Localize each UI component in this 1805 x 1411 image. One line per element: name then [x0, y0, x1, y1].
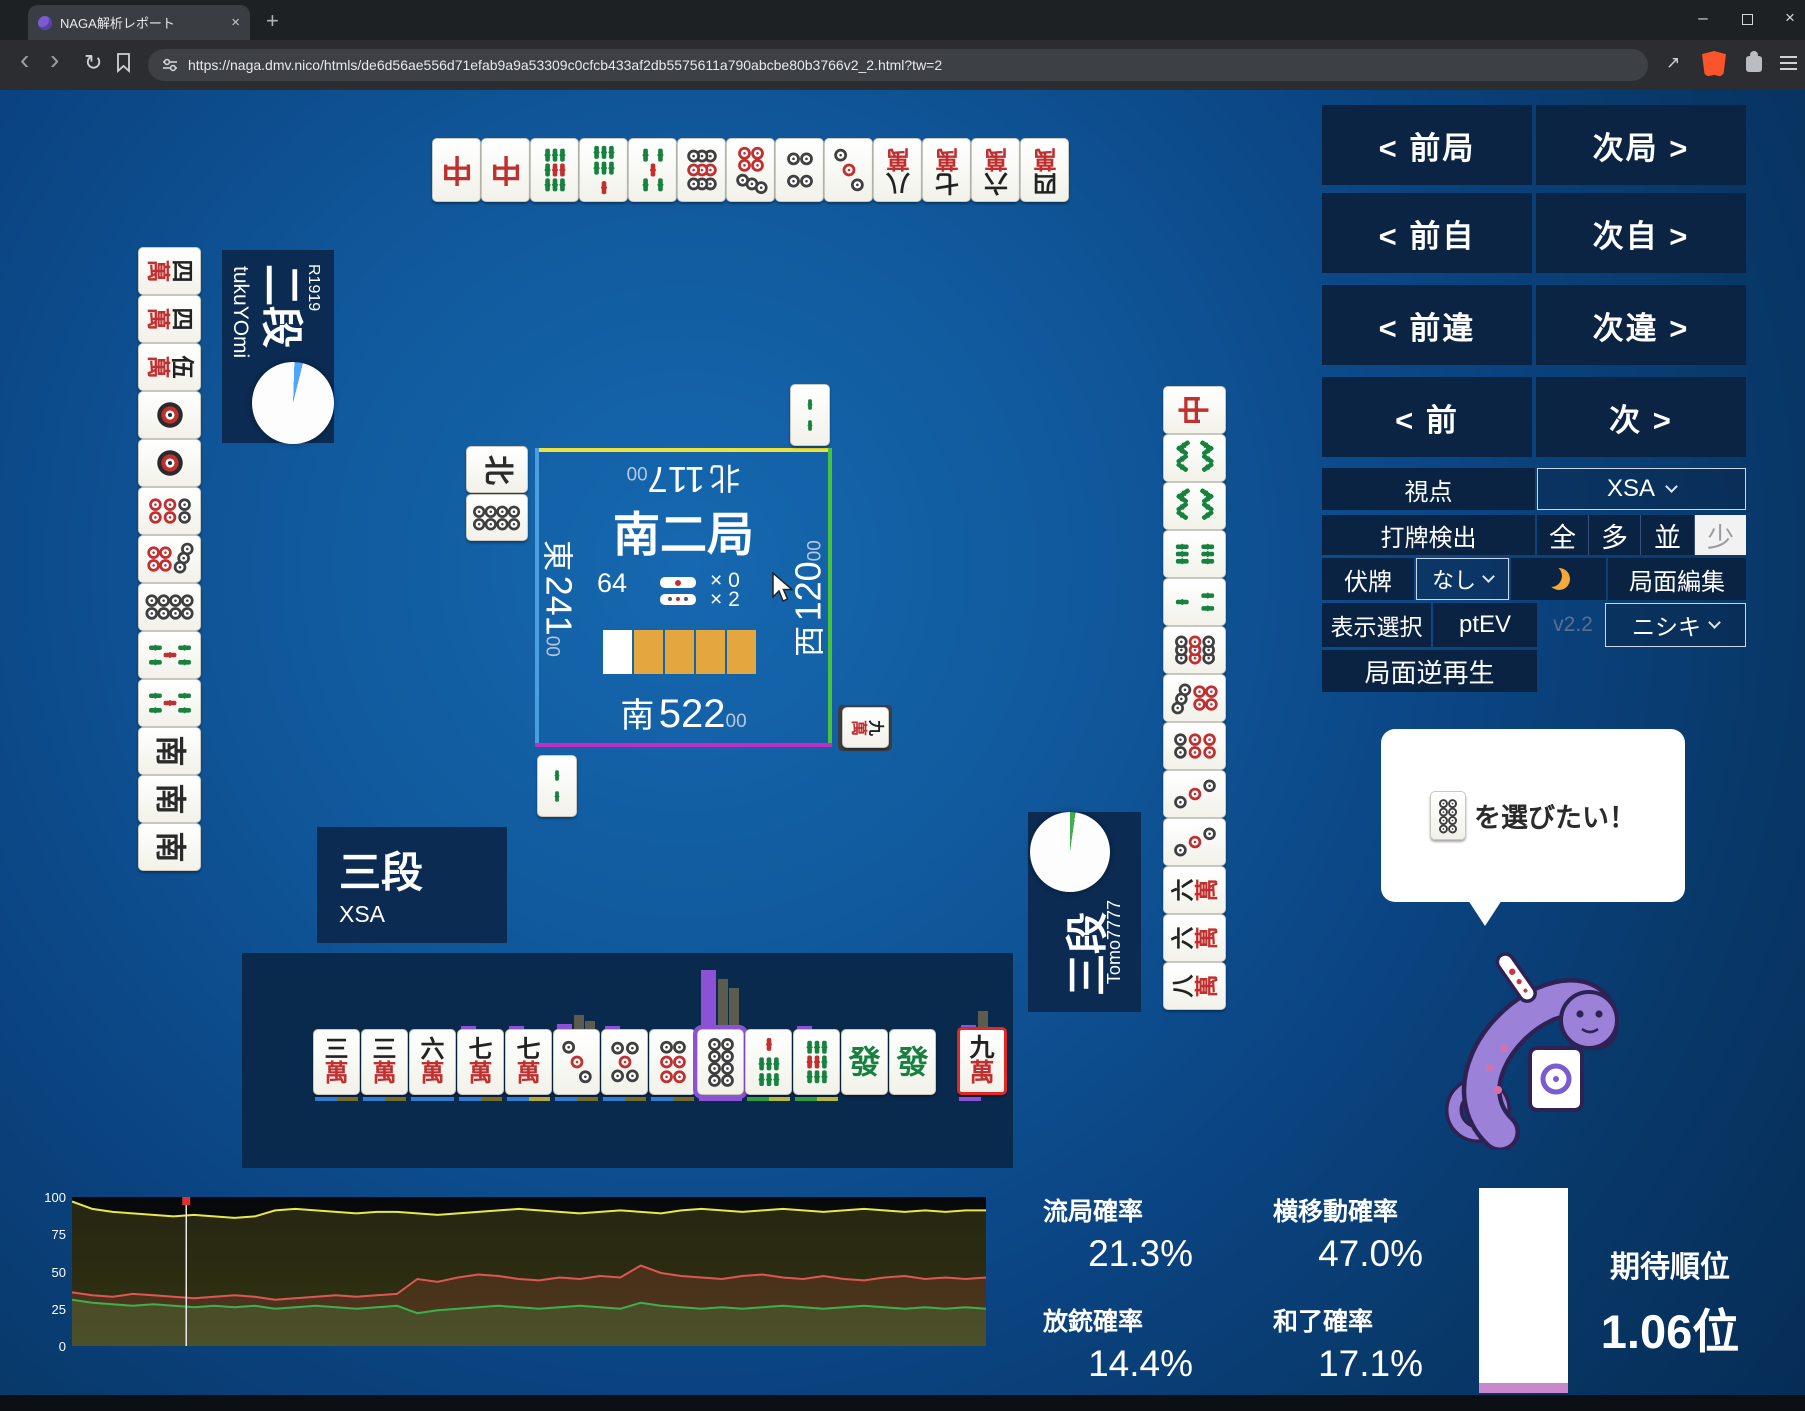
y-axis-tick: 0 — [38, 1339, 66, 1354]
brave-shield-icon[interactable] — [1702, 51, 1726, 77]
mahjong-tile-6p — [1163, 722, 1226, 770]
window-close-button[interactable]: × — [1775, 8, 1805, 28]
night-mode-button[interactable] — [1511, 558, 1606, 600]
houra-label: 和了確率 — [1273, 1302, 1373, 1338]
mahjong-tile-6m: 六萬 — [1163, 914, 1226, 962]
y-axis-tick: 100 — [38, 1190, 66, 1205]
mahjong-tile-8s — [1163, 482, 1226, 530]
mahjong-tile-5s — [628, 138, 677, 202]
mahjong-tile-chun: 中 — [432, 138, 481, 202]
chevron-down-icon — [1665, 480, 1678, 493]
y-axis-tick: 50 — [38, 1265, 66, 1280]
window-minimize-button[interactable]: – — [1688, 8, 1718, 28]
mahjong-tile-6p[interactable] — [649, 1029, 696, 1095]
mahjong-tile-8s — [1163, 434, 1226, 482]
score-jicha: 南 52200 — [535, 688, 832, 737]
tile-underline — [363, 1097, 406, 1101]
mahjong-tile-7m[interactable]: 七萬 — [505, 1029, 552, 1095]
url-bar[interactable]: https://naga.dmv.nico/htmls/de6d56ae556d… — [148, 49, 1648, 81]
naga-report-page: 中中八萬七萬六萬四萬 四萬四萬伍萬南南南 中六萬六萬八萬 二段 tukuYOmi… — [0, 90, 1805, 1411]
back-button-icon[interactable]: ‹ — [20, 44, 29, 76]
round-marker-squares — [603, 630, 756, 674]
share-icon[interactable]: ↗ — [1666, 53, 1680, 73]
dahai-option-all[interactable]: 全 — [1537, 515, 1588, 555]
gray-choice-bar — [729, 988, 739, 1029]
dahai-detect-label: 打牌検出 — [1322, 515, 1535, 555]
rank-pie-chart-shimocha — [1030, 812, 1110, 892]
prev-self-button[interactable]: < 前自 — [1322, 193, 1532, 273]
mahjong-tile-8m: 八萬 — [873, 138, 922, 202]
win-rate-chart — [72, 1197, 986, 1346]
board-edit-button[interactable]: 局面編集 — [1608, 558, 1746, 600]
mahjong-tile-8m: 八萬 — [1163, 962, 1226, 1010]
tile-underline — [459, 1097, 502, 1101]
tab-bar: NAGA解析レポート × + – × — [0, 0, 1805, 40]
forward-button-icon[interactable]: › — [50, 44, 59, 76]
mahjong-tile-7p — [726, 138, 775, 202]
tile-underline — [795, 1097, 838, 1101]
next-move-button[interactable]: 次 > — [1536, 377, 1746, 457]
browser-toolbar: ‹ › ↻ https://naga.dmv.nico/htmls/de6d56… — [0, 40, 1805, 90]
extensions-icon[interactable] — [1746, 56, 1762, 72]
mahjong-tile-6s — [1163, 530, 1226, 578]
fusehai-label: 伏牌 — [1322, 558, 1414, 600]
player-name: Tomo7777 — [1104, 900, 1125, 984]
dahai-option-normal[interactable]: 並 — [1640, 515, 1694, 555]
mahjong-tile-7s — [579, 138, 628, 202]
mahjong-tile-5s — [138, 631, 201, 679]
chevron-down-icon — [1708, 616, 1721, 629]
window-maximize-button[interactable] — [1742, 14, 1753, 25]
mahjong-tile-6m: 六萬 — [1163, 866, 1226, 914]
player-name: tukuYOmi — [228, 266, 252, 358]
player-rank: 三段 — [339, 839, 423, 900]
display-select-button[interactable]: 表示選択 — [1322, 603, 1431, 647]
menu-icon[interactable] — [1780, 56, 1797, 74]
houjuu-value: 14.4% — [1043, 1343, 1193, 1385]
prev-mismatch-button[interactable]: < 前違 — [1322, 285, 1532, 365]
mahjong-tile-3p — [1163, 818, 1226, 866]
mahjong-tile-3m[interactable]: 三萬 — [361, 1029, 408, 1095]
mahjong-tile-9p — [1163, 626, 1226, 674]
mahjong-tile-4m: 四萬 — [138, 295, 201, 343]
reverse-play-button[interactable]: 局面逆再生 — [1322, 650, 1537, 692]
mahjong-tile-7p — [1163, 674, 1226, 722]
yokoidou-label: 横移動確率 — [1273, 1192, 1398, 1228]
bookmark-icon[interactable] — [116, 53, 131, 73]
tab-close-icon[interactable]: × — [231, 14, 240, 31]
mahjong-tile-8p — [1430, 791, 1466, 840]
riichi-stick-icon — [660, 577, 696, 588]
mahjong-tile-3p[interactable] — [553, 1029, 600, 1095]
mahjong-tile-4p — [775, 138, 824, 202]
prev-round-button[interactable]: < 前局 — [1322, 105, 1532, 185]
mahjong-tile-nan: 南 — [138, 775, 201, 823]
version-label: v2.2 — [1545, 613, 1601, 637]
model-select[interactable]: ニシキ — [1605, 603, 1746, 647]
tile-underline — [411, 1097, 454, 1101]
browser-window: NAGA解析レポート × + – × ‹ › ↻ https://naga.dm… — [0, 0, 1805, 1411]
tab-title: NAGA解析レポート — [60, 13, 223, 32]
player-name: XSA — [339, 901, 385, 928]
mahjong-tile-hatsu[interactable]: 發 — [841, 1029, 888, 1095]
houra-value: 17.1% — [1273, 1343, 1423, 1385]
ryuukyoku-label: 流局確率 — [1043, 1192, 1143, 1228]
marker-square — [665, 630, 694, 674]
y-axis-tick: 25 — [38, 1302, 66, 1317]
browser-tab[interactable]: NAGA解析レポート × — [28, 5, 250, 40]
dahai-option-many[interactable]: 多 — [1588, 515, 1640, 555]
tile-underline — [555, 1097, 598, 1101]
expected-rank-bar — [1479, 1188, 1568, 1393]
tile-underline — [699, 1097, 742, 1101]
mahjong-tile-9s — [530, 138, 579, 202]
bubble-tail — [1468, 900, 1502, 926]
expected-rank-value: 1.06位 — [1585, 1293, 1755, 1362]
player-panel-jicha: 三段 XSA — [317, 827, 507, 943]
mahjong-tile-9p — [677, 138, 726, 202]
mahjong-tile-8p — [138, 583, 201, 631]
next-round-button[interactable]: 次局 > — [1536, 105, 1746, 185]
mahjong-tile-1p — [138, 391, 201, 439]
tile-underline — [651, 1097, 694, 1101]
next-mismatch-button[interactable]: 次違 > — [1536, 285, 1746, 365]
mahjong-tile-3p — [824, 138, 873, 202]
houjuu-label: 放銃確率 — [1043, 1302, 1143, 1338]
marker-square — [603, 630, 632, 674]
y-axis-tick: 75 — [38, 1227, 66, 1242]
mahjong-tile-2s — [790, 384, 830, 446]
naga-mascot — [1438, 940, 1623, 1150]
honba-stick-count: × 2 — [710, 588, 740, 612]
gray-choice-bar — [574, 1015, 584, 1029]
mahjong-tile-pei: 北 — [466, 446, 528, 493]
ryuukyoku-value: 21.3% — [1043, 1233, 1193, 1275]
mahjong-tile-5p[interactable] — [601, 1029, 648, 1095]
viewpoint-select[interactable]: XSA — [1537, 468, 1746, 510]
mahjong-tile-3p — [1163, 770, 1226, 818]
marker-square — [696, 630, 725, 674]
mahjong-tile-7s[interactable] — [745, 1029, 792, 1095]
mahjong-tile-6p — [138, 487, 201, 535]
mahjong-tile-7m: 七萬 — [922, 138, 971, 202]
gray-choice-bar — [585, 1021, 595, 1029]
wall-count: 64 — [597, 568, 627, 599]
honba-stick-icon — [660, 594, 696, 605]
mahjong-tile-8p[interactable] — [697, 1029, 744, 1095]
mahjong-tile-7m[interactable]: 七萬 — [457, 1029, 504, 1095]
ptev-button[interactable]: ptEV — [1433, 603, 1537, 647]
mahjong-tile-9s[interactable] — [793, 1029, 840, 1095]
fusehai-select[interactable]: なし — [1416, 558, 1509, 600]
dahai-option-few[interactable]: 少 — [1694, 515, 1746, 555]
mahjong-tile-4m: 四萬 — [138, 247, 201, 295]
mahjong-tile-5m: 伍萬 — [138, 343, 201, 391]
mahjong-tile-4m: 四萬 — [1020, 138, 1069, 202]
mahjong-tile-chun: 中 — [1163, 386, 1226, 434]
player-rating: R1919 — [304, 264, 322, 311]
expected-rank-label: 期待順位 — [1585, 1242, 1755, 1286]
mahjong-tile-8p — [466, 494, 528, 541]
yokoidou-value: 47.0% — [1273, 1233, 1423, 1275]
mahjong-tile-9m: 九萬 — [842, 707, 889, 748]
mouse-cursor — [770, 572, 794, 604]
mahjong-tile-nan: 南 — [138, 823, 201, 871]
rank-bar-accent — [1479, 1383, 1568, 1393]
gray-choice-bar — [718, 979, 728, 1029]
tile-underline — [603, 1097, 646, 1101]
mahjong-tile-7p — [138, 535, 201, 583]
viewpoint-label: 視点 — [1322, 468, 1535, 510]
marker-square — [727, 630, 756, 674]
tile-underline — [959, 1097, 981, 1101]
url-text[interactable]: https://naga.dmv.nico/htmls/de6d56ae556d… — [188, 57, 942, 73]
prev-move-button[interactable]: < 前 — [1322, 377, 1532, 457]
page-footer-strip — [0, 1395, 1805, 1411]
mahjong-tile-chun: 中 — [481, 138, 530, 202]
mahjong-tile-6m: 六萬 — [971, 138, 1020, 202]
naga-suggestion-bubble: を選びたい！ — [1381, 729, 1685, 902]
tile-underline — [315, 1097, 358, 1101]
reload-button-icon[interactable]: ↻ — [84, 50, 102, 76]
marker-square — [634, 630, 663, 674]
chevron-down-icon — [1482, 570, 1495, 583]
mahjong-tile-1p — [138, 439, 201, 487]
mahjong-tile-9m[interactable]: 九萬 — [957, 1027, 1007, 1095]
site-settings-icon[interactable] — [162, 57, 178, 73]
mahjong-tile-6m[interactable]: 六萬 — [409, 1029, 456, 1095]
mahjong-tile-3s — [1163, 578, 1226, 626]
tile-underline — [507, 1097, 550, 1101]
suggested-tile — [1430, 791, 1466, 840]
next-self-button[interactable]: 次自 > — [1536, 193, 1746, 273]
mahjong-tile-hatsu[interactable]: 發 — [889, 1029, 936, 1095]
tile-underline — [747, 1097, 790, 1101]
mahjong-tile-nan: 南 — [138, 727, 201, 775]
moon-icon — [1545, 566, 1572, 593]
purple-choice-bar — [701, 970, 716, 1029]
suggestion-text: を選びたい！ — [1474, 796, 1636, 835]
mahjong-tile-2s — [537, 755, 577, 817]
round-name: 南二局 — [535, 496, 832, 565]
rank-pie-chart-kamicha — [252, 362, 334, 444]
new-tab-button[interactable]: + — [266, 8, 279, 34]
naga-favicon-icon — [38, 16, 52, 30]
mahjong-tile-5s — [138, 679, 201, 727]
mahjong-tile-3m[interactable]: 三萬 — [313, 1029, 360, 1095]
